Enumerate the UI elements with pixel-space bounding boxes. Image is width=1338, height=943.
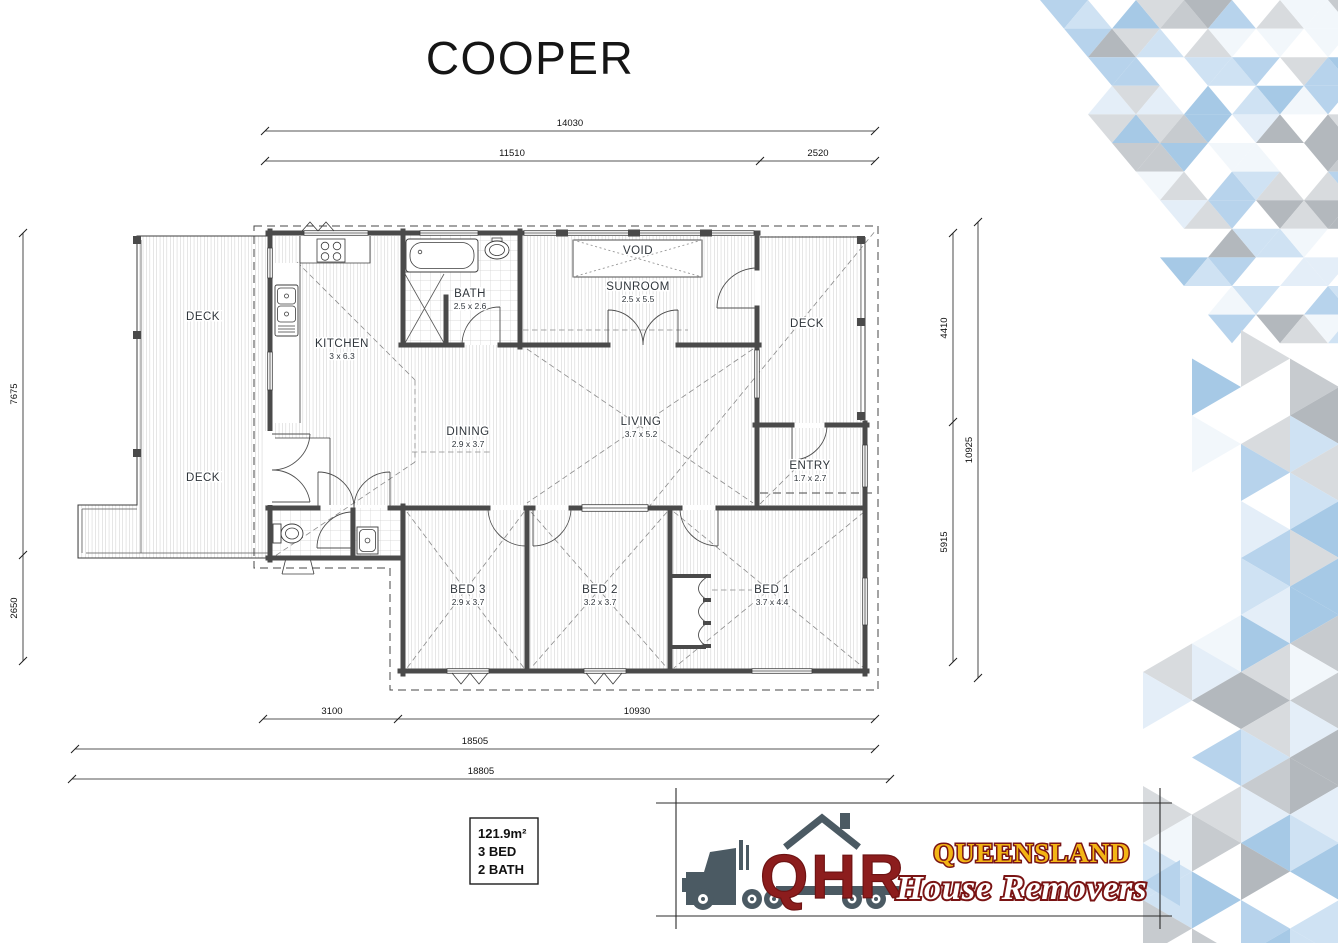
floor-plan-sheet: COOPER: [0, 0, 1338, 943]
wardrobe-floor: [672, 578, 704, 647]
room-size-kitchen: 3 x 6.3: [329, 351, 355, 361]
kitchen-sink-icon: [275, 285, 298, 336]
room-size-living: 3.7 x 5.2: [625, 429, 658, 439]
logo-name-line2: House Removers: [895, 870, 1147, 907]
pattern-triangle: [1184, 86, 1232, 115]
window: [304, 231, 368, 236]
svg-text:14030: 14030: [557, 118, 583, 129]
room-size-bed2: 3.2 x 3.7: [584, 597, 617, 607]
room-label-deck-left-bottom: DECK: [186, 472, 220, 484]
page-title: COOPER: [426, 32, 634, 84]
pattern-triangle: [1304, 29, 1338, 58]
room-label-dining: DINING: [446, 426, 489, 438]
deck-left-floor: [78, 236, 268, 558]
room-label-deck-right: DECK: [790, 318, 824, 330]
svg-text:10925: 10925: [964, 437, 975, 463]
room-label-bed1: BED 1: [754, 584, 790, 596]
window: [752, 669, 812, 674]
cased-opening: [582, 505, 648, 512]
logo-name-line1: QUEENSLAND: [933, 838, 1131, 868]
room-label-void: VOID: [623, 245, 653, 257]
window: [268, 248, 273, 278]
room-label-bath: BATH: [454, 288, 486, 300]
svg-text:10930: 10930: [624, 706, 650, 717]
logo-abbr: QHR: [760, 843, 907, 912]
dim-left: 7675 2650: [9, 229, 27, 665]
triangle-mosaic-pattern: [1040, 0, 1338, 943]
dim-bottom-sub: 18505: [71, 736, 879, 753]
room-label-bed3: BED 3: [450, 584, 486, 596]
info-baths: 2 BATH: [478, 862, 524, 877]
laundry-tub-icon: [357, 527, 378, 554]
door-gap: [265, 431, 275, 505]
svg-text:3100: 3100: [321, 706, 342, 717]
window: [447, 669, 489, 674]
window: [863, 445, 868, 487]
svg-text:18505: 18505: [462, 736, 488, 747]
info-area: 121.9m²: [478, 826, 527, 841]
pattern-triangle: [1192, 729, 1241, 786]
svg-text:2520: 2520: [807, 148, 828, 159]
room-size-bed1: 3.7 x 4.4: [756, 597, 789, 607]
bathtub-icon: [406, 239, 478, 272]
window: [268, 352, 273, 390]
room-size-dining: 2.9 x 3.7: [452, 439, 485, 449]
pattern-triangle: [1192, 929, 1241, 943]
window: [584, 669, 626, 674]
dim-top-split: 11510 2520: [261, 148, 879, 165]
window: [420, 231, 478, 236]
pattern-triangle: [1256, 29, 1304, 58]
dim-right-total: 10925: [964, 218, 982, 682]
svg-text:4410: 4410: [939, 317, 950, 338]
toilet-icon: [273, 524, 303, 543]
room-size-entry: 1.7 x 2.7: [794, 473, 827, 483]
room-size-sunroom: 2.5 x 5.5: [622, 294, 655, 304]
room-label-deck-left-top: DECK: [186, 311, 220, 323]
window: [863, 578, 868, 625]
pattern-triangle: [1192, 416, 1241, 473]
info-beds: 3 BED: [478, 844, 516, 859]
svg-text:18805: 18805: [468, 766, 494, 777]
svg-text:11510: 11510: [499, 148, 525, 159]
logo-block: QHR QUEENSLAND House Removers: [656, 788, 1180, 929]
room-size-bath: 2.5 x 2.6: [454, 301, 487, 311]
dim-bottom-split: 3100 10930: [259, 706, 879, 723]
dim-bottom-total: 18805: [68, 766, 894, 783]
svg-text:7675: 7675: [9, 383, 20, 404]
room-label-kitchen: KITCHEN: [315, 338, 369, 350]
room-label-sunroom: SUNROOM: [606, 281, 670, 293]
dim-top-total: 14030: [261, 118, 879, 135]
room-size-bed3: 2.9 x 3.7: [452, 597, 485, 607]
room-label-bed2: BED 2: [582, 584, 618, 596]
room-label-living: LIVING: [621, 416, 662, 428]
svg-text:2650: 2650: [9, 597, 20, 618]
floor-plan: DECK DECK DECK KITCHEN 3 x 6.3 BATH 2.5 …: [78, 222, 878, 690]
svg-text:5915: 5915: [939, 531, 950, 552]
pattern-triangle: [1192, 359, 1241, 416]
room-label-entry: ENTRY: [789, 460, 830, 472]
window: [524, 230, 754, 237]
info-box: 121.9m² 3 BED 2 BATH: [470, 818, 538, 884]
dim-right-split: 4410 5915: [939, 229, 957, 666]
pattern-triangle: [1192, 872, 1241, 929]
window: [755, 350, 760, 398]
house-roof-icon: [788, 813, 856, 845]
